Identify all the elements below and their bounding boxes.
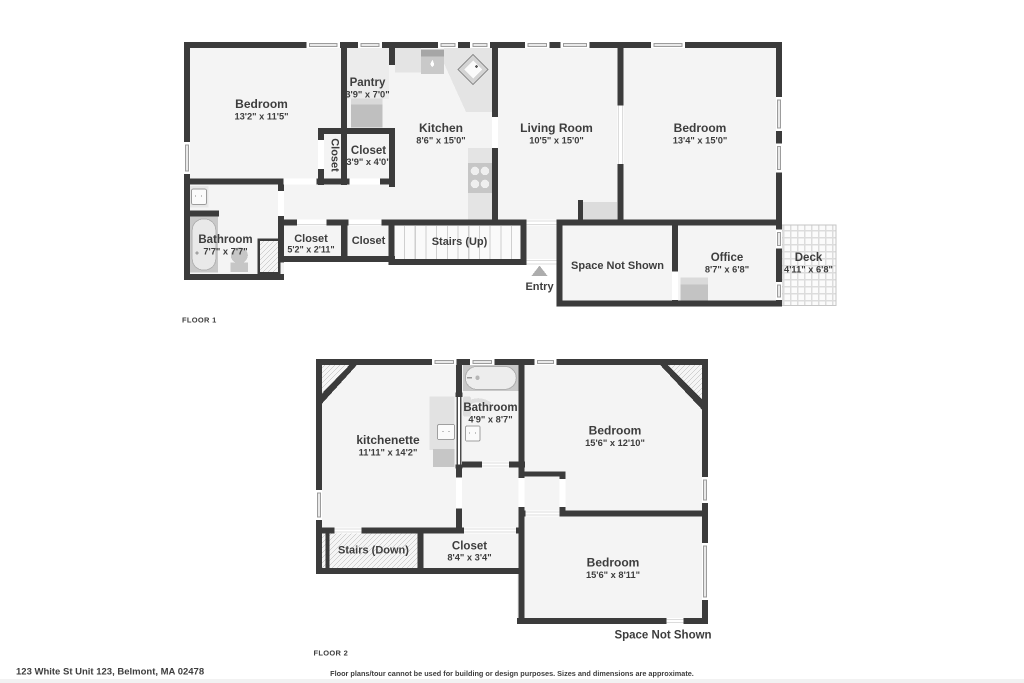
svg-text:Bedroom: Bedroom	[674, 121, 727, 135]
svg-text:13'4" x 15'0": 13'4" x 15'0"	[673, 136, 728, 146]
svg-text:Stairs (Up): Stairs (Up)	[432, 236, 488, 248]
svg-text:Floor plans/tour cannot be use: Floor plans/tour cannot be used for buil…	[330, 669, 694, 678]
svg-text:Stairs (Down): Stairs (Down)	[338, 545, 409, 557]
svg-text:7'7" x 7'7": 7'7" x 7'7"	[203, 247, 247, 257]
svg-text:Bathroom: Bathroom	[463, 402, 517, 414]
svg-text:FLOOR 1: FLOOR 1	[182, 316, 217, 325]
svg-text:Entry: Entry	[525, 281, 554, 293]
svg-text:11'11" x 14'2": 11'11" x 14'2"	[359, 448, 418, 458]
svg-text:Bathroom: Bathroom	[198, 234, 252, 246]
svg-text:Bedroom: Bedroom	[587, 556, 640, 570]
svg-text:4'11" x 6'8": 4'11" x 6'8"	[784, 265, 833, 275]
svg-text:Closet: Closet	[294, 233, 328, 245]
svg-text:123 White St Unit 123, Belmont: 123 White St Unit 123, Belmont, MA 02478	[16, 667, 204, 678]
svg-text:Pantry: Pantry	[350, 77, 386, 89]
svg-text:Kitchen: Kitchen	[419, 121, 463, 135]
svg-text:8'7" x 6'8": 8'7" x 6'8"	[705, 265, 749, 275]
svg-text:Space Not Shown: Space Not Shown	[571, 260, 664, 272]
svg-text:Office: Office	[711, 252, 744, 264]
svg-text:10'5" x 15'0": 10'5" x 15'0"	[529, 136, 584, 146]
svg-text:4'9" x 8'7": 4'9" x 8'7"	[468, 415, 512, 425]
svg-text:Bedroom: Bedroom	[589, 424, 642, 438]
svg-text:8'6" x 15'0": 8'6" x 15'0"	[416, 136, 465, 146]
svg-text:13'2" x 11'5": 13'2" x 11'5"	[234, 112, 288, 122]
svg-text:8'4" x 3'4": 8'4" x 3'4"	[447, 553, 491, 563]
svg-text:3'9" x 4'0": 3'9" x 4'0"	[346, 157, 390, 167]
svg-text:Closet: Closet	[452, 541, 487, 553]
svg-text:3'9" x 7'0": 3'9" x 7'0"	[345, 90, 389, 100]
svg-text:5'2" x 2'11": 5'2" x 2'11"	[287, 245, 334, 255]
svg-text:Closet: Closet	[329, 138, 341, 172]
svg-text:Living Room: Living Room	[520, 121, 593, 135]
svg-text:Closet: Closet	[351, 145, 386, 157]
svg-text:Space Not Shown: Space Not Shown	[614, 630, 711, 642]
svg-text:15'6" x 12'10": 15'6" x 12'10"	[585, 438, 645, 448]
svg-text:Closet: Closet	[352, 235, 386, 247]
svg-text:kitchenette: kitchenette	[356, 433, 420, 447]
svg-text:15'6" x 8'11": 15'6" x 8'11"	[586, 570, 640, 580]
svg-text:Deck: Deck	[795, 252, 823, 264]
svg-text:Bedroom: Bedroom	[235, 97, 288, 111]
svg-text:FLOOR 2: FLOOR 2	[314, 649, 349, 658]
